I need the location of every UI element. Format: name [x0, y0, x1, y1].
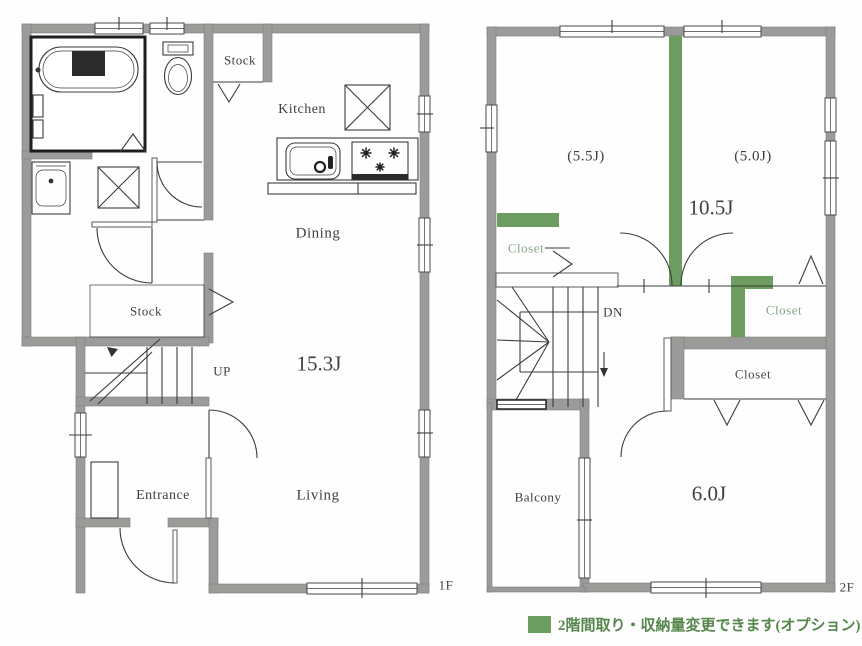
bedroom-a-door-arc	[620, 233, 672, 285]
stock-top-closet	[213, 82, 263, 102]
floor2-label: 2F	[840, 581, 855, 594]
bifold-door-icon	[218, 84, 240, 102]
room-label-stock-top: Stock	[224, 54, 256, 67]
toilet-door-arc	[157, 162, 202, 207]
floor1-label: 1F	[439, 579, 454, 592]
bathroom-unit	[31, 37, 146, 152]
room-label-closet-right: Closet	[766, 304, 802, 317]
counter-edge	[268, 183, 416, 194]
room-label-kitchen: Kitchen	[278, 103, 326, 117]
hall-doors	[617, 233, 826, 293]
room-label-closet-south: Closet	[735, 368, 771, 381]
south-closet	[684, 399, 826, 425]
room-label-living: Living	[297, 489, 340, 504]
room-c-size-label: 6.0J	[692, 484, 726, 505]
toilet-icon	[163, 42, 193, 95]
room-label-stock-mid: Stock	[130, 305, 162, 318]
washroom	[32, 162, 152, 283]
green-option-walls	[497, 36, 773, 337]
shoe-cabinet	[91, 462, 118, 518]
closet-right-symbols	[799, 256, 823, 284]
stairs-down-label: DN	[603, 306, 623, 319]
refrigerator-icon	[345, 85, 390, 130]
hall-to-living-door-arc	[206, 410, 257, 518]
balcony-wall	[487, 587, 585, 592]
stove-icon	[352, 142, 408, 180]
ldk-size-label: 15.3J	[297, 354, 342, 375]
bifold-door-icon	[798, 400, 824, 425]
bifold-door-icon	[714, 400, 740, 425]
legend-text: 2階間取り・収納量変更できます(オプション)	[558, 614, 861, 635]
legend: 2階間取り・収納量変更できます(オプション)	[528, 614, 861, 635]
toilet-room	[152, 42, 204, 222]
front-door-arc	[120, 528, 177, 583]
washing-machine-icon	[98, 167, 139, 208]
room-label-closet-left: Closet	[508, 242, 544, 255]
green-partition-wall	[669, 36, 682, 286]
floorplan-drawing	[0, 0, 862, 646]
stairs-up-icon	[85, 339, 192, 404]
hall-size-label: 10.5J	[689, 198, 734, 219]
legend-green-swatch	[528, 616, 551, 633]
washroom-door-arc	[97, 228, 152, 283]
room-c-door-arc	[621, 338, 671, 457]
bifold-door-icon	[799, 256, 823, 284]
kitchen-counter	[277, 138, 418, 180]
stairs-up-label: UP	[213, 365, 231, 378]
room-label-entrance: Entrance	[136, 489, 190, 503]
bedroom-b-door-arc	[681, 233, 733, 285]
washbasin-icon	[32, 162, 70, 214]
balcony-wall	[487, 403, 492, 592]
green-closet-wall-right	[731, 276, 745, 337]
floorplan-canvas: Stock Kitchen Dining Stock UP 15.3J Entr…	[0, 0, 862, 646]
room-label-dining: Dining	[296, 227, 341, 242]
room-label-balcony: Balcony	[515, 491, 562, 504]
green-closet-wall-left	[497, 213, 559, 227]
stairs-down-icon	[497, 287, 608, 407]
sink-icon	[286, 143, 340, 179]
room-a-size-label: (5.5J)	[567, 150, 605, 165]
room-b-size-label: (5.0J)	[734, 150, 772, 165]
floor1-plan	[22, 17, 433, 598]
